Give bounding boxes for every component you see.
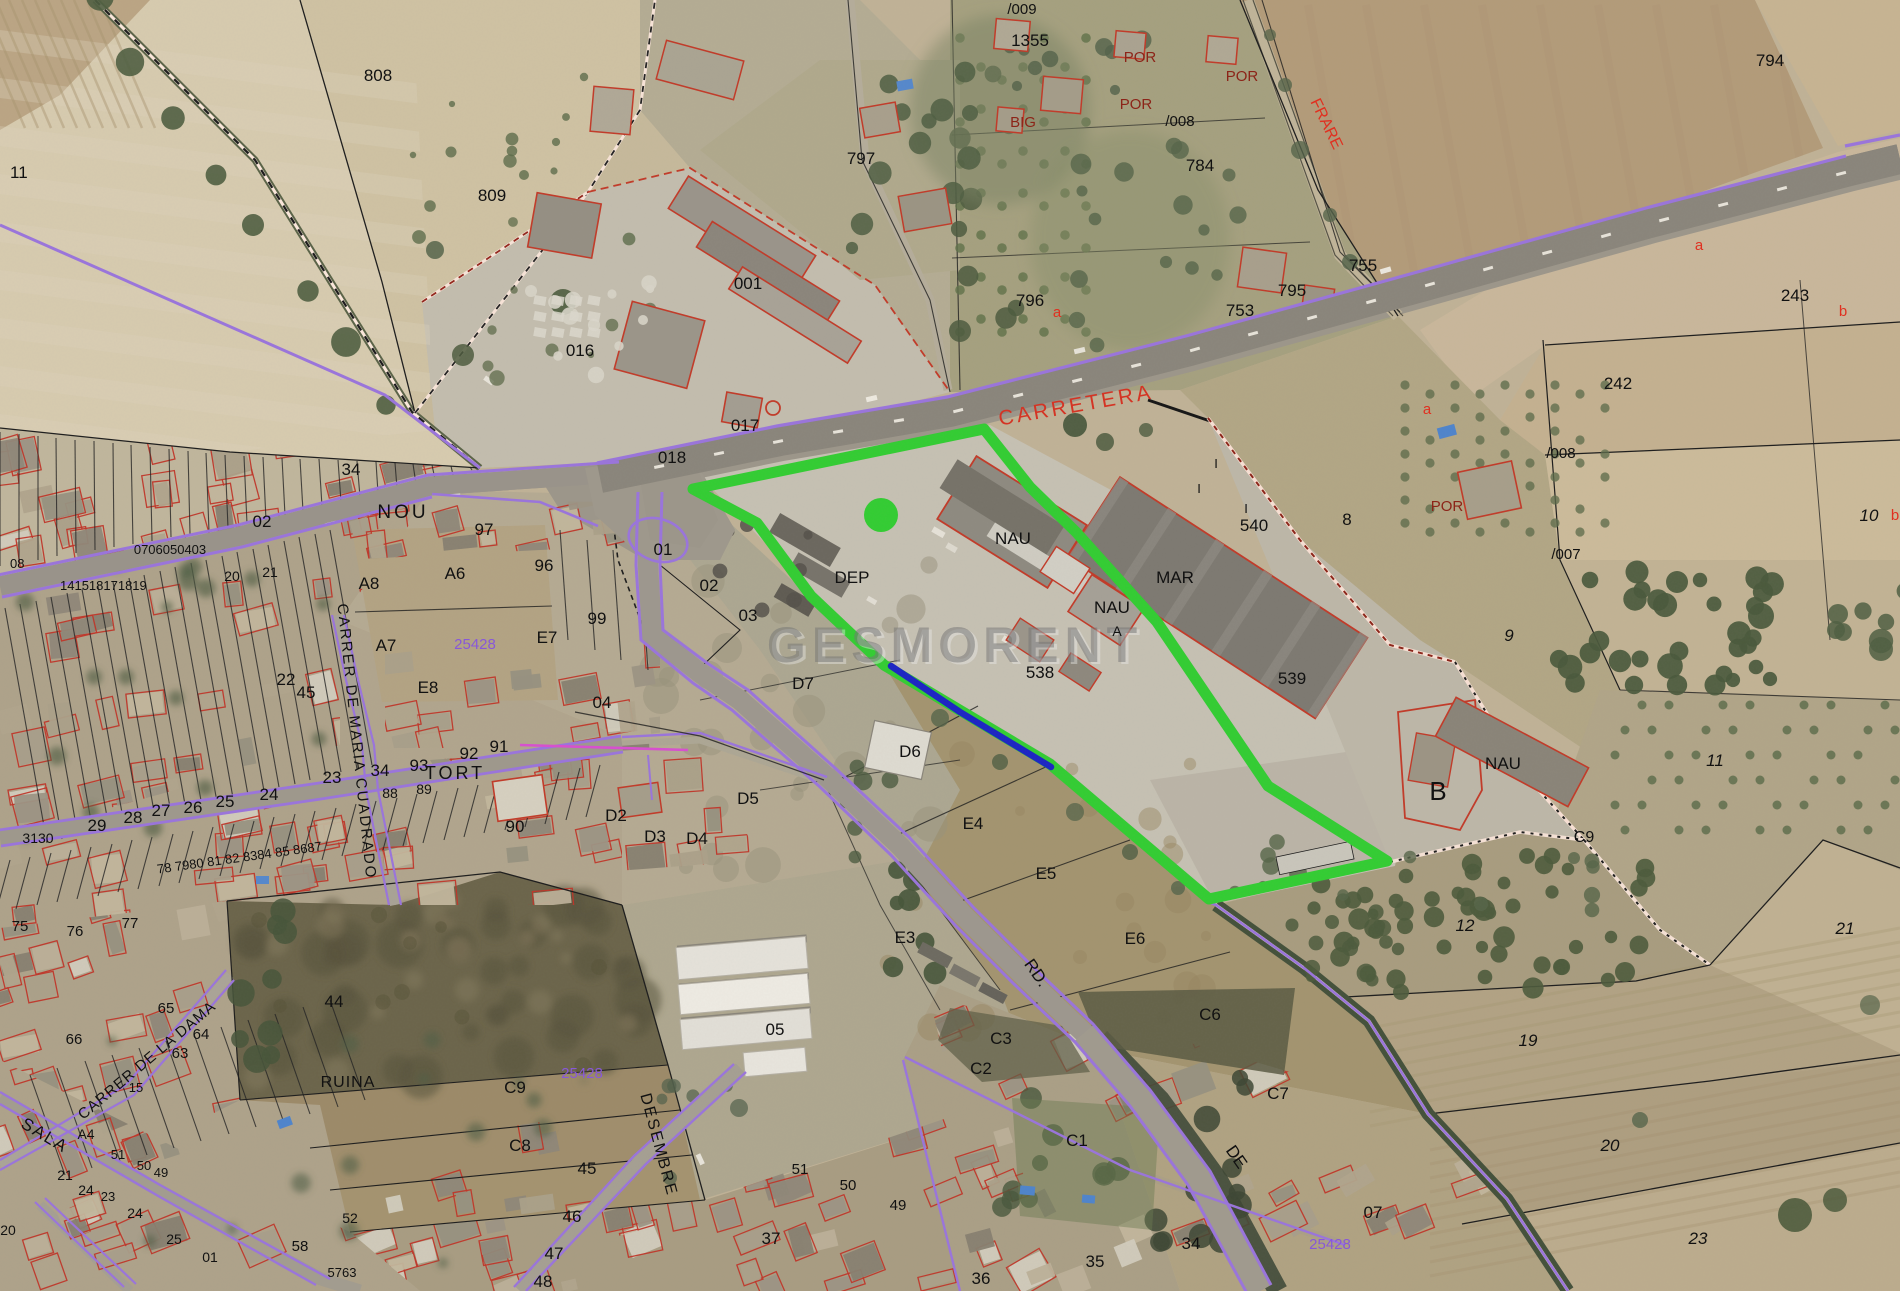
svg-text:E4: E4: [963, 814, 984, 833]
svg-text:b: b: [1839, 303, 1847, 320]
svg-text:E6: E6: [1125, 929, 1146, 948]
svg-text:01: 01: [654, 540, 673, 559]
svg-text:E8: E8: [418, 678, 439, 697]
svg-text:25428: 25428: [1309, 1236, 1351, 1253]
svg-text:E7: E7: [537, 628, 558, 647]
svg-text:51: 51: [111, 1147, 125, 1162]
svg-text:141518171819: 141518171819: [60, 578, 147, 593]
svg-text:77: 77: [122, 915, 139, 932]
svg-text:8: 8: [1342, 510, 1351, 529]
svg-text:POR: POR: [1431, 498, 1464, 515]
svg-text:b: b: [1891, 507, 1899, 524]
svg-text:C2: C2: [970, 1059, 992, 1078]
svg-text:C6: C6: [1199, 1005, 1221, 1024]
svg-text:POR: POR: [1226, 68, 1259, 85]
svg-text:93: 93: [410, 756, 429, 775]
svg-text:52: 52: [342, 1210, 358, 1226]
svg-text:/008: /008: [1546, 445, 1575, 462]
svg-text:a: a: [1053, 304, 1062, 321]
svg-text:MAR: MAR: [1156, 568, 1194, 587]
svg-text:25: 25: [166, 1231, 182, 1247]
svg-text:66: 66: [66, 1031, 83, 1048]
svg-text:51: 51: [792, 1161, 809, 1178]
svg-text:a: a: [1423, 401, 1432, 418]
svg-text:796: 796: [1016, 291, 1044, 310]
svg-text:795: 795: [1278, 281, 1306, 300]
svg-text:02: 02: [700, 576, 719, 595]
svg-text:11: 11: [10, 163, 28, 182]
svg-text:04: 04: [593, 693, 612, 712]
svg-text:A7: A7: [376, 636, 397, 655]
svg-text:65: 65: [158, 1000, 175, 1017]
svg-text:D2: D2: [605, 806, 627, 825]
svg-text:23: 23: [101, 1189, 115, 1204]
svg-text:001: 001: [734, 274, 762, 293]
svg-text:75: 75: [12, 918, 29, 935]
svg-text:29: 29: [88, 816, 107, 835]
svg-text:07: 07: [1364, 1203, 1383, 1222]
svg-text:19: 19: [1519, 1031, 1538, 1050]
svg-text:BIG: BIG: [1010, 114, 1036, 131]
svg-text:D6: D6: [899, 742, 921, 761]
svg-text:58: 58: [292, 1238, 309, 1255]
svg-text:a: a: [1695, 237, 1704, 254]
svg-text:34: 34: [1182, 1234, 1201, 1253]
svg-text:0706050403: 0706050403: [134, 542, 206, 557]
svg-text:45: 45: [297, 683, 316, 702]
svg-text:RUINA: RUINA: [321, 1074, 376, 1091]
svg-text:47: 47: [545, 1244, 564, 1263]
svg-text:50: 50: [840, 1177, 857, 1194]
svg-text:DEP: DEP: [835, 568, 870, 587]
svg-text:D3: D3: [644, 827, 666, 846]
svg-text:11: 11: [1706, 751, 1724, 770]
svg-text:D7: D7: [792, 674, 814, 693]
svg-text:34: 34: [342, 460, 361, 479]
svg-text:A8: A8: [359, 574, 380, 593]
svg-text:C9: C9: [504, 1078, 526, 1097]
svg-text:02: 02: [253, 512, 272, 531]
svg-text:3130: 3130: [22, 830, 53, 846]
svg-text:21: 21: [262, 564, 278, 580]
svg-text:018: 018: [658, 448, 686, 467]
svg-text:24: 24: [127, 1205, 143, 1221]
svg-text:I: I: [1244, 501, 1248, 516]
svg-text:20: 20: [224, 568, 240, 584]
svg-text:POR: POR: [1120, 96, 1153, 113]
svg-text:NAU: NAU: [1094, 598, 1130, 617]
svg-text:017: 017: [731, 416, 759, 435]
svg-text:1355: 1355: [1011, 31, 1049, 50]
svg-text:97: 97: [475, 520, 494, 539]
svg-text:01: 01: [202, 1249, 218, 1265]
svg-text:36: 36: [972, 1269, 991, 1288]
svg-text:99: 99: [588, 609, 607, 628]
svg-text:A4: A4: [77, 1126, 94, 1142]
svg-text:27: 27: [152, 801, 171, 820]
svg-text:05: 05: [766, 1020, 785, 1039]
svg-text:10: 10: [1860, 506, 1879, 525]
svg-text:63: 63: [172, 1045, 189, 1062]
svg-text:89: 89: [416, 781, 432, 797]
svg-text:794: 794: [1756, 51, 1784, 70]
svg-text:/009: /009: [1007, 1, 1036, 18]
svg-text:NAU: NAU: [1485, 754, 1521, 773]
svg-text:25428: 25428: [454, 636, 496, 653]
svg-text:A: A: [1112, 623, 1122, 639]
svg-text:C9: C9: [1574, 829, 1595, 846]
svg-text:08: 08: [10, 556, 24, 571]
svg-text:23: 23: [323, 768, 342, 787]
svg-text:I: I: [1214, 456, 1218, 471]
svg-text:28: 28: [124, 808, 143, 827]
svg-text:C7: C7: [1267, 1084, 1289, 1103]
svg-text:21: 21: [1835, 919, 1855, 938]
svg-text:E5: E5: [1036, 864, 1057, 883]
svg-text:25: 25: [216, 792, 235, 811]
svg-text:539: 539: [1278, 669, 1306, 688]
svg-text:49: 49: [890, 1197, 907, 1214]
svg-text:24: 24: [78, 1182, 94, 1198]
svg-text:I: I: [1197, 481, 1201, 496]
svg-text:C3: C3: [990, 1029, 1012, 1048]
svg-text:92: 92: [460, 744, 479, 763]
svg-text:E3: E3: [895, 928, 916, 947]
svg-text:76: 76: [67, 923, 84, 940]
svg-text:15: 15: [129, 1080, 143, 1095]
svg-text:48: 48: [534, 1272, 553, 1291]
svg-text:538: 538: [1026, 663, 1054, 682]
svg-text:88: 88: [382, 785, 398, 801]
svg-text:91: 91: [490, 737, 509, 756]
svg-text:25428: 25428: [561, 1065, 603, 1082]
svg-text:24: 24: [260, 785, 279, 804]
svg-text:TORT: TORT: [425, 763, 485, 783]
svg-text:37: 37: [762, 1229, 781, 1248]
svg-text:242: 242: [1604, 374, 1632, 393]
svg-text:POR: POR: [1124, 49, 1157, 66]
svg-text:D4: D4: [686, 829, 708, 848]
svg-text:46: 46: [563, 1207, 582, 1226]
svg-text:NAU: NAU: [995, 529, 1031, 548]
svg-text:49: 49: [154, 1165, 168, 1180]
svg-text:C8: C8: [509, 1136, 531, 1155]
svg-text:016: 016: [566, 341, 594, 360]
svg-text:03: 03: [739, 606, 758, 625]
svg-text:808: 808: [364, 66, 392, 85]
svg-text:96: 96: [535, 556, 554, 575]
svg-text:/007: /007: [1551, 546, 1580, 563]
svg-text:784: 784: [1186, 156, 1214, 175]
svg-text:A6: A6: [445, 564, 466, 583]
svg-text:809: 809: [478, 186, 506, 205]
svg-text:44: 44: [325, 992, 344, 1011]
svg-text:B: B: [1429, 776, 1446, 806]
svg-text:5763: 5763: [328, 1265, 357, 1280]
svg-text:755: 755: [1349, 256, 1377, 275]
svg-text:NOU: NOU: [377, 502, 428, 523]
svg-text:20: 20: [0, 1222, 16, 1238]
svg-text:26: 26: [184, 798, 203, 817]
svg-text:34: 34: [371, 761, 390, 780]
svg-text:21: 21: [57, 1167, 73, 1183]
svg-text:C1: C1: [1066, 1131, 1088, 1150]
svg-text:35: 35: [1086, 1252, 1105, 1271]
svg-text:12: 12: [1456, 916, 1475, 935]
svg-text:753: 753: [1226, 301, 1254, 320]
svg-text:20: 20: [1600, 1136, 1620, 1155]
svg-text:50: 50: [137, 1158, 151, 1173]
svg-text:540: 540: [1240, 516, 1268, 535]
svg-text:64: 64: [193, 1026, 210, 1043]
svg-text:9: 9: [1504, 626, 1514, 645]
svg-text:90: 90: [506, 817, 525, 836]
svg-text:797: 797: [847, 149, 875, 168]
svg-text:22: 22: [277, 670, 296, 689]
svg-text:243: 243: [1781, 286, 1809, 305]
svg-text:D5: D5: [737, 789, 759, 808]
svg-text:23: 23: [1688, 1229, 1708, 1248]
svg-text:/008: /008: [1165, 113, 1194, 130]
svg-text:45: 45: [578, 1159, 597, 1178]
